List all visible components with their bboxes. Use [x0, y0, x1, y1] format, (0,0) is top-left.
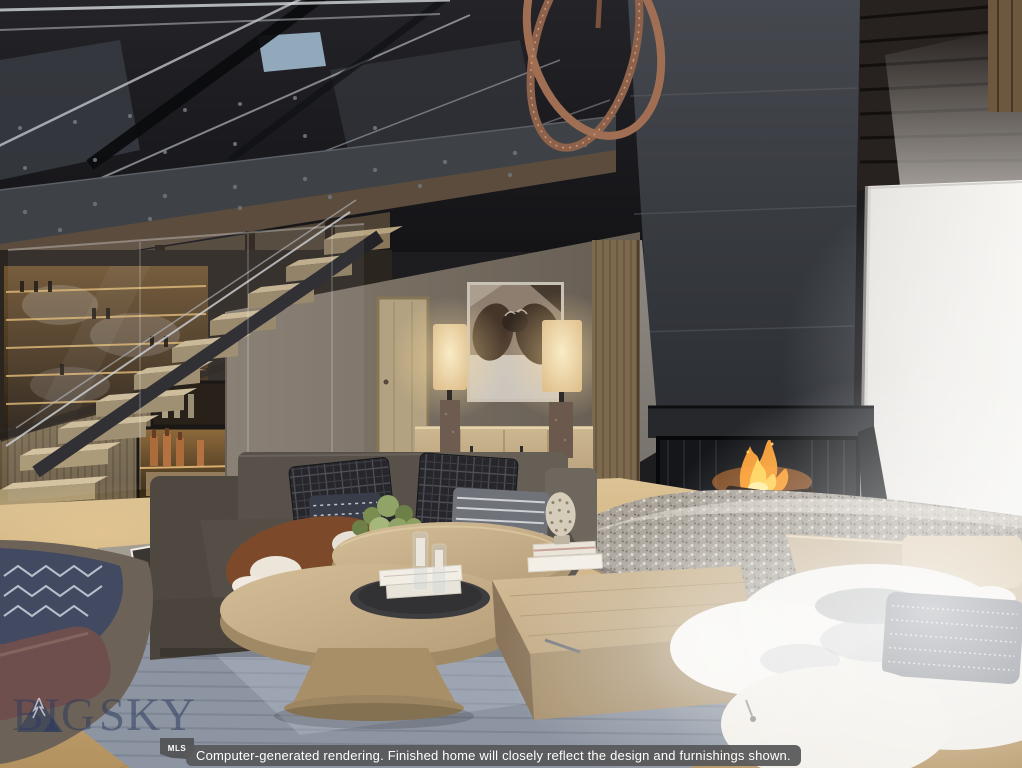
listing-photo: BIG SKY MLS Computer-generated rendering… [0, 0, 1022, 768]
caption-bar: Computer-generated rendering. Finished h… [186, 745, 801, 766]
watermark-word-sky: SKY [99, 696, 196, 735]
right-wood-wall [858, 0, 1022, 190]
rendered-scene [0, 0, 1022, 768]
slat-cabinet [592, 240, 640, 512]
mountain-icon [13, 696, 65, 734]
upper-door [988, 0, 1022, 112]
bigsky-watermark: BIG SKY [12, 696, 196, 735]
caption-text: Computer-generated rendering. Finished h… [196, 748, 791, 763]
